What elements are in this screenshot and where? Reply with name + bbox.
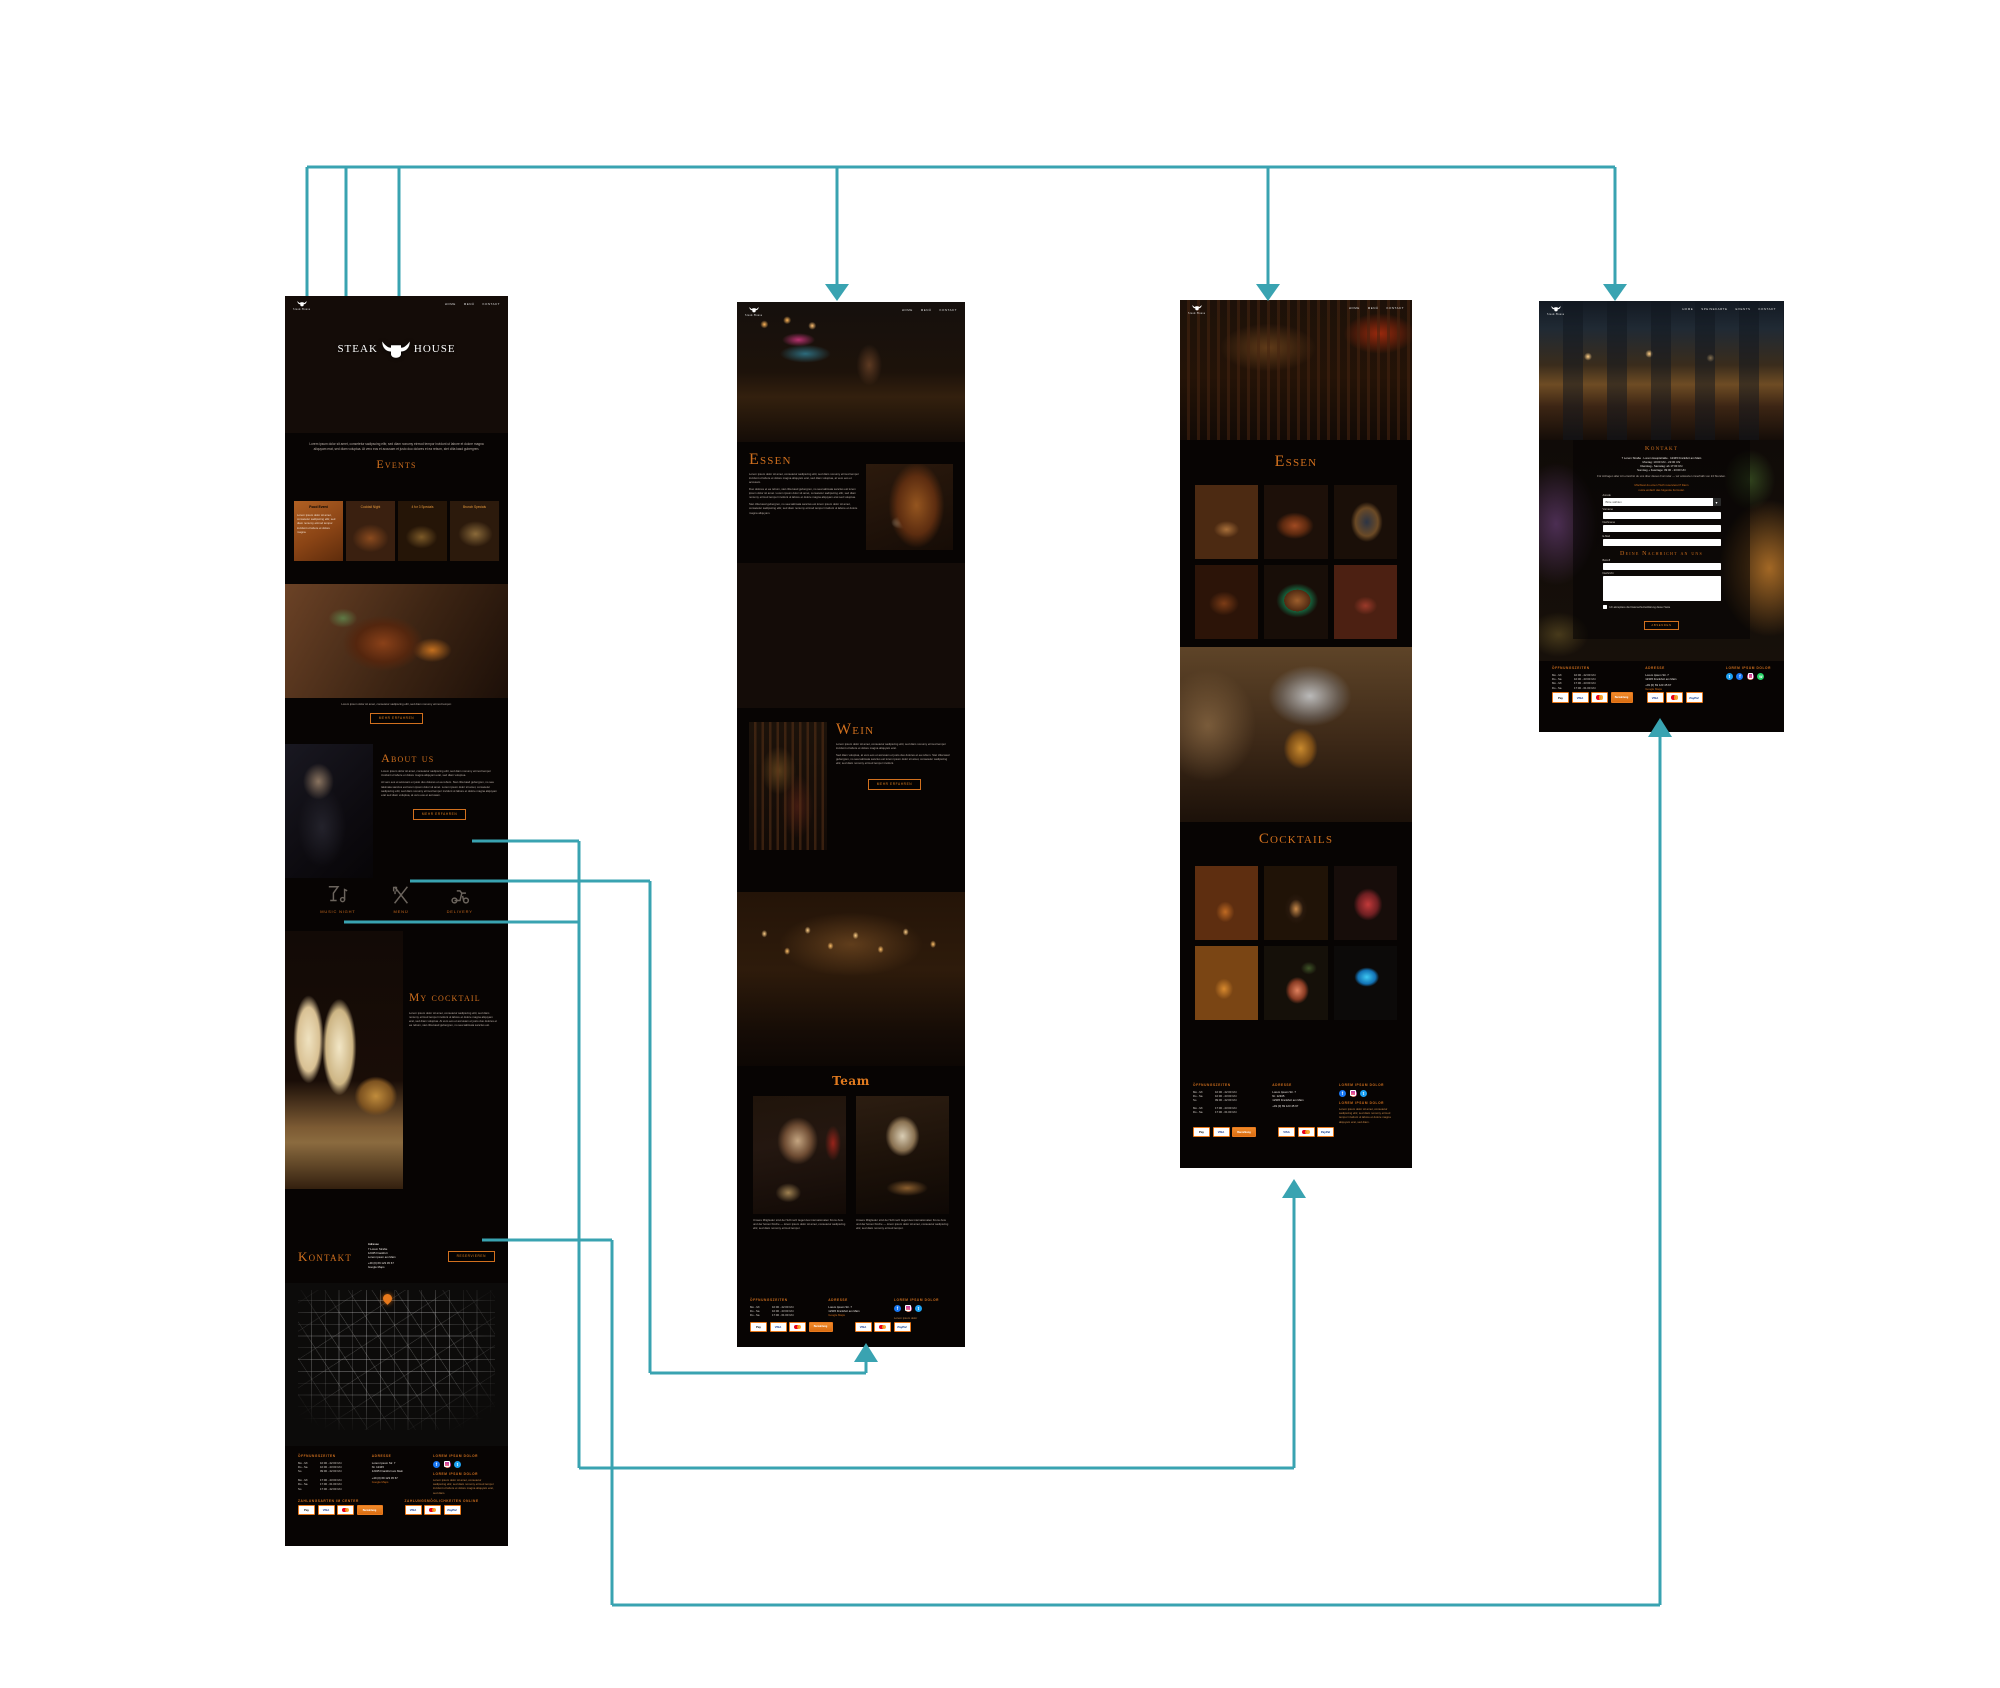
visa-icon: VISA — [318, 1505, 335, 1516]
whatsapp-icon[interactable]: w — [1757, 673, 1764, 680]
betreff-label: Betreff — [1603, 559, 1721, 562]
home-header: Steak House Home Menü Kontakt — [285, 296, 508, 315]
kontakt-footer: Öffnungszeiten Mo - Mi10:00 - 22:00 Uhr … — [1539, 661, 1784, 732]
home-logo[interactable]: Steak House — [293, 300, 310, 311]
smoked-whiskey-image — [1180, 647, 1412, 822]
mastercard-icon — [1298, 1127, 1315, 1138]
instagram-icon[interactable] — [444, 1461, 451, 1468]
footer-hours-title: Öffnungszeiten — [750, 1298, 794, 1302]
footer-maps-link[interactable]: Google Maps — [828, 1313, 859, 1317]
essen-heading: Essen — [1180, 440, 1412, 470]
twitter-icon[interactable]: t — [915, 1305, 922, 1312]
instagram-icon[interactable] — [1747, 673, 1754, 680]
cash-chip: Barzahlung — [809, 1322, 833, 1333]
team-photo-2 — [856, 1096, 949, 1214]
visa-icon: VISA — [855, 1322, 872, 1333]
paypal-icon: PayPal — [444, 1505, 461, 1516]
page-home: Steak House Home Menü Kontakt STEAK HOUS… — [285, 296, 508, 1546]
facebook-icon[interactable]: f — [1339, 1090, 1346, 1097]
events-heading: Events — [285, 458, 508, 470]
arrow-down-cocktails-page — [1256, 284, 1280, 301]
nav-item-events[interactable]: Events — [1736, 307, 1751, 311]
footer-hours-title: Öffnungszeiten — [1193, 1083, 1237, 1087]
cocktails-grid-section — [1180, 862, 1412, 1041]
reservation-form: Anrede Bitte wählen ▾ Vorname Nachname E… — [1603, 494, 1721, 631]
anrede-label: Anrede — [1603, 494, 1721, 497]
cocktail-photo-highball — [1264, 866, 1327, 940]
team-section: Team Unsere Mitglieder sind der Schmelz … — [737, 1066, 965, 1294]
reserve-prompt-line2: nutze einfach das folgende Formular. — [1581, 488, 1742, 492]
kontakt-maps-link[interactable]: Google Maps — [368, 1265, 432, 1269]
nav-item-home[interactable]: Home — [902, 308, 913, 312]
privacy-checkbox[interactable] — [1603, 605, 1608, 610]
footer-maps-link[interactable]: Google Maps — [372, 1480, 403, 1484]
visa-icon: VISA — [1647, 692, 1664, 703]
mastercard-icon — [789, 1322, 806, 1333]
essen-section: Essen Lorem ipsum dolor sit amet, conset… — [737, 442, 965, 563]
wein-section: Wein Lorem ipsum dolor sit amet, consete… — [737, 708, 965, 892]
bull-logo-icon — [297, 300, 307, 307]
footer-social-title: Lorem ipsum dolor — [433, 1454, 495, 1458]
footer-payments-center: Zahlungsarten im Center Pay VISA Barzahl… — [298, 1499, 383, 1516]
cocktail-photo-amber — [1195, 946, 1258, 1020]
visa-icon: VISA — [1278, 1127, 1295, 1138]
about-image — [285, 744, 373, 878]
fork-knife-icon — [390, 884, 412, 906]
essen-heading-section: Essen — [1180, 440, 1412, 483]
about-heading: About us — [381, 752, 498, 764]
twitter-icon[interactable]: t — [454, 1461, 461, 1468]
cocktails-heading: Cocktails — [1180, 822, 1412, 847]
bull-logo-icon — [1551, 305, 1561, 312]
footer-address-line: 12345 Frankfurt am Main — [372, 1469, 403, 1473]
anrede-value: Bitte wählen — [1603, 498, 1713, 506]
my-cocktail-heading: My cocktail — [409, 993, 498, 1005]
instagram-icon[interactable] — [1350, 1090, 1357, 1097]
sitemap-canvas: Steak House Home Menü Kontakt STEAK HOUS… — [0, 0, 2000, 1688]
home-logo-text: Steak House — [293, 308, 310, 311]
event-card-food-event[interactable]: Food Event Lorem ipsum dolor sit amet, c… — [294, 501, 343, 561]
footer-phone: +49 (0) 69 123 45 67 — [1272, 1104, 1303, 1108]
kontakt-address: Adresse 7 Lorem Straße 12345 Frankfurt L… — [368, 1242, 432, 1269]
logo-word-steak: STEAK — [337, 343, 377, 355]
event-card-text: Lorem ipsum dolor sit amet, consetetur s… — [297, 513, 340, 534]
food-photo-sliced-steak — [1334, 565, 1397, 639]
home-intro-text: Lorem ipsum dolor sit amet, consetetur s… — [285, 433, 508, 452]
footer-address-line: 12345 Frankfurt am Main — [1272, 1098, 1303, 1102]
team-caption-1: Unsere Mitglieder sind der Schmelz tiege… — [753, 1218, 846, 1231]
event-card-4for3[interactable]: 4 for 3 Specials — [398, 501, 447, 561]
kontakt-logo[interactable]: Steak House — [1547, 305, 1564, 316]
nav-item-home[interactable]: Home — [445, 302, 456, 306]
cocktails-footer: Öffnungszeiten Mo - Mi10:00 - 22:00 Uhr … — [1180, 1041, 1412, 1168]
page-cocktails: Steak House Home Menü Kontakt Essen — [1180, 300, 1412, 1168]
about-paragraph-1: Lorem ipsum dolor sit amet, consetetur s… — [381, 769, 498, 777]
twitter-icon[interactable]: t — [1360, 1090, 1367, 1097]
food-photo-burger — [1195, 485, 1258, 559]
essen-footer: Öffnungszeiten Mo - Mi10:00 - 22:00 Uhr … — [737, 1294, 965, 1347]
cocktails-nav: Home Menü Kontakt — [1349, 304, 1404, 310]
cocktail-photo-old-fashioned — [1195, 866, 1258, 940]
cocktail-photo-grapefruit — [1264, 946, 1327, 1020]
nav-item-menu[interactable]: Menü — [1368, 306, 1379, 310]
event-card-cocktail-night[interactable]: Cocktail Night — [346, 501, 395, 561]
event-card-title: Food Event — [294, 505, 343, 509]
nachname-field[interactable] — [1603, 525, 1721, 532]
delivery-scooter-icon — [449, 884, 471, 906]
kontakt-reserve-button[interactable]: Reservieren — [448, 1251, 495, 1262]
kontakt-heading: Kontakt — [298, 1250, 352, 1263]
wein-heading: Wein — [836, 722, 953, 738]
visa-icon: VISA — [770, 1322, 787, 1333]
payments-online-title: Zahlungsmöglichkeiten online — [405, 1499, 479, 1503]
footer-social-title: Lorem ipsum dolor — [894, 1298, 952, 1302]
nav-item-menu[interactable]: Menü — [921, 308, 932, 312]
message-heading: Deine Nachricht an uns — [1603, 551, 1721, 557]
footer-about-text: Lorem ipsum dolor sit amet, consetetur s… — [1339, 1107, 1399, 1124]
footer-social-title: Lorem ipsum dolor — [1726, 666, 1771, 670]
event-card-title: 4 for 3 Specials — [398, 505, 447, 509]
about-more-button[interactable]: Mehr erfahren — [413, 809, 466, 820]
footer-address-title: Adresse — [372, 1454, 403, 1458]
facebook-icon[interactable]: f — [433, 1461, 440, 1468]
home-main-logo: STEAK HOUSE — [285, 338, 508, 360]
feature-menu[interactable]: Menü — [390, 884, 412, 914]
vorname-field[interactable] — [1603, 512, 1721, 519]
food-photo-ribs — [1264, 485, 1327, 559]
ribs-pan-image — [737, 563, 965, 708]
wein-more-button[interactable]: Mehr erfahren — [868, 779, 921, 790]
cash-chip: Barzahlung — [357, 1505, 383, 1516]
chevron-down-icon[interactable]: ▾ — [1713, 498, 1721, 506]
home-hero-image: Steak House Home Menü Kontakt STEAK HOUS… — [285, 296, 508, 433]
nachricht-label: Nachricht — [1603, 572, 1721, 575]
essen-paragraph-1: Lorem ipsum dolor sit amet, consetetur s… — [749, 472, 860, 485]
email-field[interactable] — [1603, 539, 1721, 546]
visa-icon: VISA — [405, 1505, 422, 1516]
footer-about-title: Lorem ipsum dolor — [1339, 1101, 1399, 1105]
nav-item-speisekarte[interactable]: Speisekarte — [1701, 307, 1727, 311]
home-intro-section: Lorem ipsum dolor sit amet, consetetur s… — [285, 433, 508, 495]
nav-item-kontakt[interactable]: Kontakt — [940, 308, 957, 312]
footer-about-title: Lorem ipsum dolor — [433, 1472, 495, 1476]
mastercard-icon — [1666, 692, 1683, 703]
payments-center-title: Zahlungsarten im Center — [298, 1499, 383, 1503]
applepay-icon: Pay — [750, 1322, 767, 1333]
feature-music-night[interactable]: Music Night — [320, 884, 355, 914]
twitter-icon[interactable]: t — [1726, 673, 1733, 680]
mastercard-icon — [1591, 692, 1608, 703]
feature-label: Music Night — [320, 909, 355, 914]
footer-social-title: Lorem ipsum dolor — [1339, 1083, 1399, 1087]
privacy-label: Ich akzeptiere die Datenschutzerklärung … — [1610, 606, 1671, 609]
visa-icon: VISA — [1572, 692, 1589, 703]
event-card-brunch[interactable]: Brunch Specials — [450, 501, 499, 561]
steak-more-button[interactable]: Mehr erfahren — [370, 713, 423, 724]
footer-payments-online: Zahlungsmöglichkeiten online VISA PayPal — [405, 1499, 479, 1516]
steak-caption: Lorem ipsum dolor sit amet, consetetur s… — [285, 698, 508, 706]
kontakt-note: Für Anfragen aller Art erreichst du uns … — [1581, 474, 1742, 478]
arrow-down-essen-page — [825, 284, 849, 301]
kontakt-page-heading: Kontakt — [1581, 446, 1742, 453]
wein-paragraph-1: Lorem ipsum dolor sit amet, consetetur s… — [836, 742, 953, 750]
arrow-up-cocktails-page — [1282, 1179, 1306, 1198]
kontakt-hours-3: Sonntag + Feiertage: 09:00 - 23:00 Uhr — [1581, 468, 1742, 472]
nav-item-home[interactable]: Home — [1349, 306, 1360, 310]
food-photo-board — [1334, 485, 1397, 559]
applepay-icon: Pay — [1193, 1127, 1210, 1138]
instagram-icon[interactable] — [905, 1305, 912, 1312]
cocktails-hero-image: Steak House Home Menü Kontakt — [1180, 300, 1412, 440]
about-paragraph-2: At vero eos et accusam et justo duo dolo… — [381, 780, 498, 797]
footer-social: Lorem ipsum dolor f t Lorem ipsum dolor … — [433, 1454, 495, 1495]
events-cards-section: Food Event Lorem ipsum dolor sit amet, c… — [285, 495, 508, 584]
mastercard-icon — [337, 1505, 354, 1516]
feature-delivery[interactable]: Delivery — [447, 884, 473, 914]
footer-address-line: 12345 Frankfurt am Main — [1645, 677, 1676, 681]
paypal-icon: PayPal — [1317, 1127, 1334, 1138]
essen-grid-section — [1180, 483, 1412, 647]
send-button[interactable]: Absenden — [1644, 621, 1678, 631]
bull-logo-icon — [1192, 304, 1202, 311]
nav-item-menu[interactable]: Menü — [464, 302, 475, 306]
my-cocktail-section: My cocktail Lorem ipsum dolor sit amet, … — [285, 931, 508, 1229]
vorname-label: Vorname — [1603, 508, 1721, 511]
paypal-icon: PayPal — [894, 1322, 911, 1333]
mastercard-icon — [424, 1505, 441, 1516]
team-heading: Team — [737, 1066, 965, 1088]
cash-chip: Barzahlung — [1611, 692, 1633, 703]
music-cocktail-icon — [327, 884, 349, 906]
essen-paragraph-3: Stet clita kasd gubergren, no sea takima… — [749, 502, 860, 515]
my-cocktail-text: Lorem ipsum dolor sit amet, consetetur s… — [409, 1011, 498, 1028]
bull-skull-icon — [381, 338, 411, 360]
nachname-label: Nachname — [1603, 521, 1721, 524]
cocktails-logo-text: Steak House — [1188, 312, 1205, 315]
page-essen: Steak House Home Menü Kontakt Essen Lore… — [737, 302, 965, 1347]
home-footer: Öffnungszeiten Mo - Mi10:00 - 22:00 Uhr … — [285, 1446, 508, 1546]
food-photo-bbq-platter — [1264, 565, 1327, 639]
footer-address-title: Adresse — [1645, 666, 1676, 670]
bull-logo-icon — [749, 306, 759, 313]
page-kontakt: Steak House Home Speisekarte Events Kont… — [1539, 301, 1784, 732]
visa-icon: VISA — [1213, 1127, 1230, 1138]
kontakt-section: Kontakt Adresse 7 Lorem Straße 12345 Fra… — [285, 1229, 508, 1283]
footer-hours: Öffnungszeiten Mo - Mi10:00 - 22:00 Uhr … — [298, 1454, 342, 1495]
kontakt-nav: Home Speisekarte Events Kontakt — [1682, 305, 1776, 311]
email-label: E-Mail — [1603, 535, 1721, 538]
nav-item-kontakt[interactable]: Kontakt — [1759, 307, 1776, 311]
bar-lights-image — [737, 892, 965, 1066]
wein-paragraph-2: Sed diam voluptua, at vero eos et accusa… — [836, 753, 953, 766]
steak-caption-section: Lorem ipsum dolor sit amet, consetetur s… — [285, 698, 508, 744]
anrede-select[interactable]: Bitte wählen ▾ — [1603, 498, 1721, 506]
kontakt-logo-text: Steak House — [1547, 313, 1564, 316]
team-photo-1 — [753, 1096, 846, 1214]
cocktails-heading-section: Cocktails — [1180, 822, 1412, 862]
event-card-title: Cocktail Night — [346, 505, 395, 509]
applepay-icon: Pay — [1552, 692, 1569, 703]
team-caption-2: Unsere Mitglieder sind der Schmelz tiege… — [856, 1218, 949, 1231]
wine-shelf-image — [749, 722, 827, 850]
facebook-icon[interactable]: f — [1736, 673, 1743, 680]
about-section: About us Lorem ipsum dolor sit amet, con… — [285, 744, 508, 878]
nav-item-kontakt[interactable]: Kontakt — [483, 302, 500, 306]
footer-address-title: Adresse — [1272, 1083, 1303, 1087]
footer-hours-title: Öffnungszeiten — [1552, 666, 1596, 670]
essen-nav: Home Menü Kontakt — [902, 306, 957, 312]
facebook-icon[interactable]: f — [894, 1305, 901, 1312]
essen-heading: Essen — [749, 452, 860, 468]
cocktail-glasses-image — [285, 931, 403, 1189]
kontakt-address-line: Lorem ipsum am Main — [368, 1255, 432, 1259]
essen-logo[interactable]: Steak House — [745, 306, 762, 317]
kontakt-form-section: Kontakt 7 Lorem Straße · Lorem Hauptstra… — [1539, 440, 1784, 661]
cocktail-photo-blue-martini — [1334, 946, 1397, 1020]
nav-item-kontakt[interactable]: Kontakt — [1387, 306, 1404, 310]
footer-address: Adresse Lorem Ipsum Str. 7 Nr. 12345 123… — [372, 1454, 403, 1495]
footer-about-title: Lorem ipsum dolor — [894, 1316, 952, 1320]
event-card-title: Brunch Specials — [450, 505, 499, 509]
map-streets — [298, 1290, 494, 1430]
mastercard-icon — [874, 1322, 891, 1333]
steak-pan-image — [285, 584, 508, 698]
food-photo-steak-pan — [1195, 565, 1258, 639]
betreff-field[interactable] — [1603, 563, 1721, 570]
essen-paragraph-2: Duo dolores et ea rebum, stet clita kasd… — [749, 487, 860, 500]
cocktail-photo-red-splash — [1334, 866, 1397, 940]
footer-hours-title: Öffnungszeiten — [298, 1454, 342, 1458]
logo-word-house: HOUSE — [414, 343, 456, 355]
cocktails-logo[interactable]: Steak House — [1188, 304, 1205, 315]
home-nav: Home Menü Kontakt — [445, 300, 500, 306]
applepay-icon: Pay — [298, 1505, 315, 1516]
nav-item-home[interactable]: Home — [1682, 307, 1693, 311]
essen-hero-image: Steak House Home Menü Kontakt — [737, 302, 965, 442]
features-section: Music Night Menü Delivery — [285, 878, 508, 931]
cash-chip: Barzahlung — [1232, 1127, 1256, 1138]
essen-food-image — [866, 464, 953, 550]
feature-label: Delivery — [447, 909, 473, 914]
arrow-down-kontakt-page — [1603, 284, 1627, 301]
map-section[interactable] — [285, 1283, 508, 1446]
paypal-icon: PayPal — [1686, 692, 1703, 703]
kontakt-hero-image: Steak House Home Speisekarte Events Kont… — [1539, 301, 1784, 440]
essen-logo-text: Steak House — [745, 314, 762, 317]
feature-label: Menü — [394, 909, 409, 914]
footer-about-text: Lorem ipsum dolor sit amet, consetetur s… — [433, 1478, 495, 1495]
footer-maps-link[interactable]: Google Maps — [1645, 687, 1676, 691]
footer-address-title: Adresse — [828, 1298, 859, 1302]
nachricht-textarea[interactable] — [1603, 576, 1721, 601]
